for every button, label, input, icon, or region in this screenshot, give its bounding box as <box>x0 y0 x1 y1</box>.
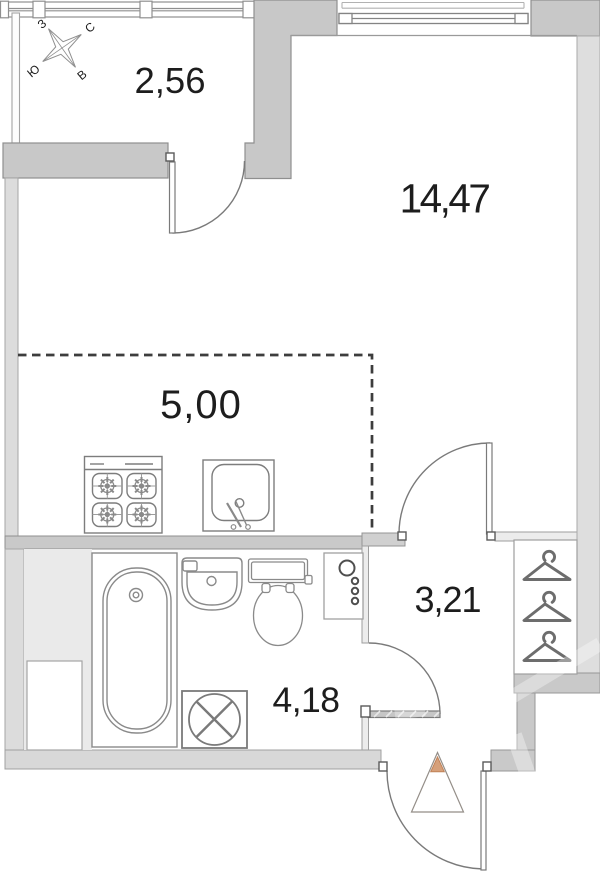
svg-text:2,56: 2,56 <box>134 60 205 101</box>
svg-text:5,00: 5,00 <box>160 383 242 427</box>
svg-text:3,21: 3,21 <box>414 579 480 620</box>
svg-text:14,47: 14,47 <box>400 176 490 222</box>
svg-text:4,18: 4,18 <box>272 680 339 720</box>
